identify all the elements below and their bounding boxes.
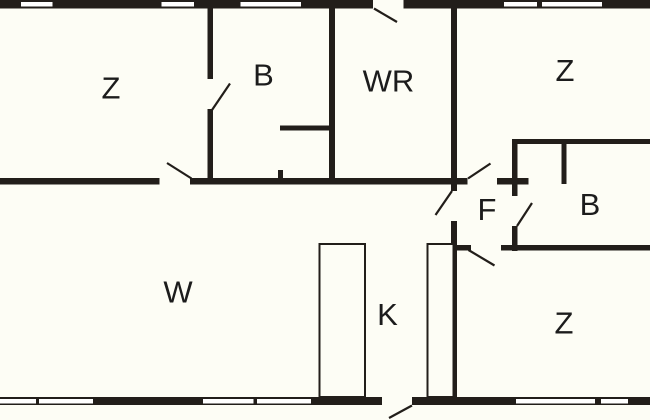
- svg-text:Z: Z: [555, 306, 574, 341]
- svg-text:K: K: [377, 297, 398, 332]
- svg-text:WR: WR: [363, 64, 415, 99]
- svg-text:Z: Z: [102, 71, 121, 106]
- svg-text:W: W: [163, 275, 193, 310]
- svg-text:F: F: [478, 192, 497, 227]
- svg-text:B: B: [580, 187, 601, 222]
- svg-text:B: B: [253, 58, 274, 93]
- svg-text:Z: Z: [556, 53, 575, 88]
